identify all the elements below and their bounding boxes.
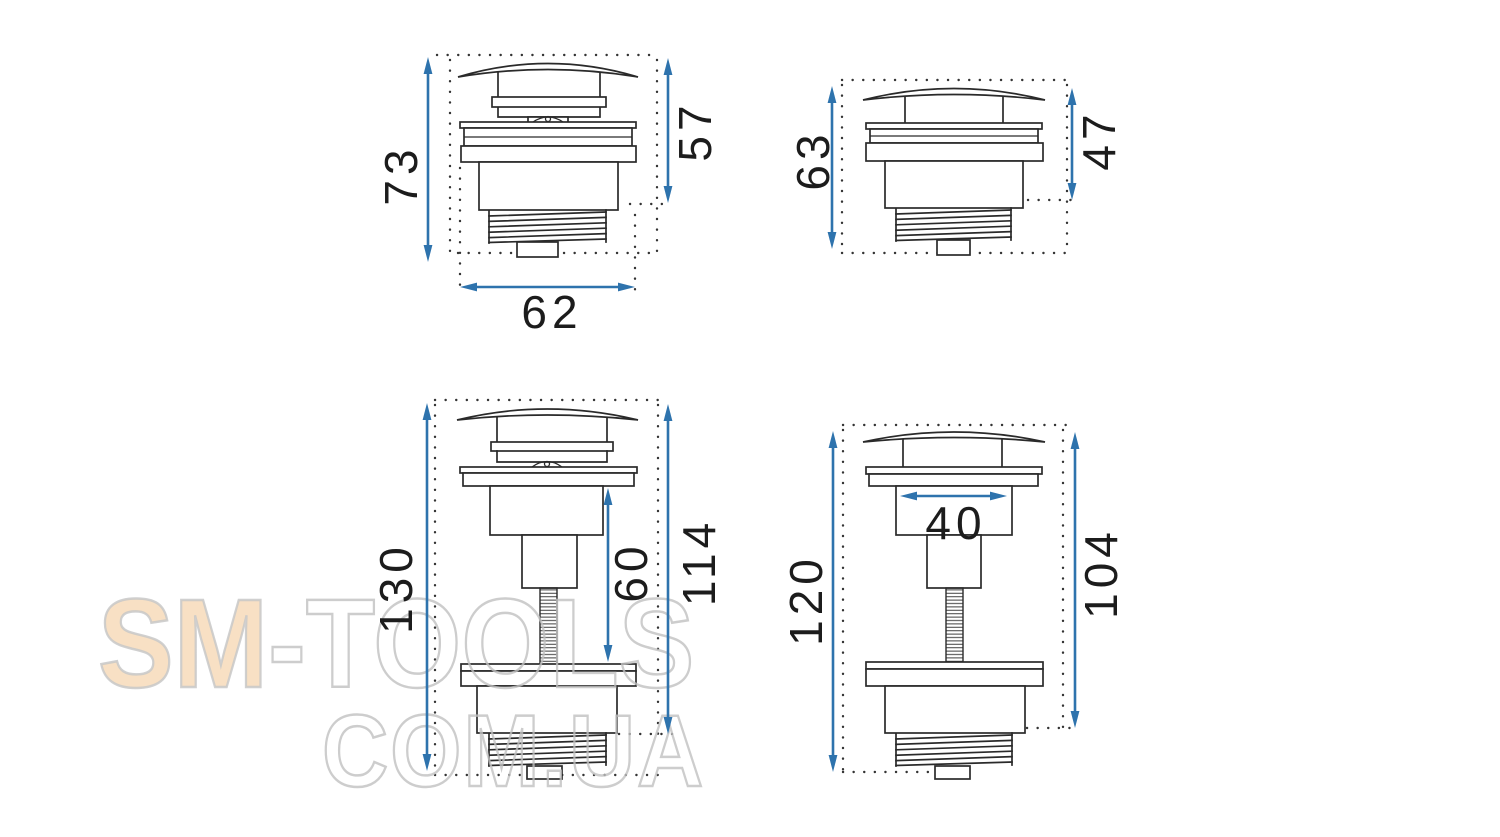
dim-label-height-upper-top-right: 47 (1071, 70, 1127, 210)
technical-drawing-page: SM-TOOLS COM.UA (0, 0, 1500, 837)
dim-label-height-upper-top-left: 57 (667, 61, 723, 201)
dimensions-layer (0, 0, 1500, 837)
dim-label-height-total-top-right: 63 (785, 90, 841, 230)
dim-label-height-body-bottom-right: 104 (1073, 503, 1129, 643)
dim-label-height-body-bottom-left: 114 (671, 492, 727, 632)
dim-label-width-top-left: 62 (482, 284, 622, 340)
dim-label-height-total-bottom-right: 120 (778, 530, 834, 670)
dim-label-stem-length-bottom-left: 60 (603, 502, 659, 642)
dim-label-inner-width-bottom-right: 40 (886, 495, 1026, 551)
dim-label-height-total-bottom-left: 130 (368, 518, 424, 658)
dim-label-height-total-top-left: 73 (373, 105, 429, 245)
